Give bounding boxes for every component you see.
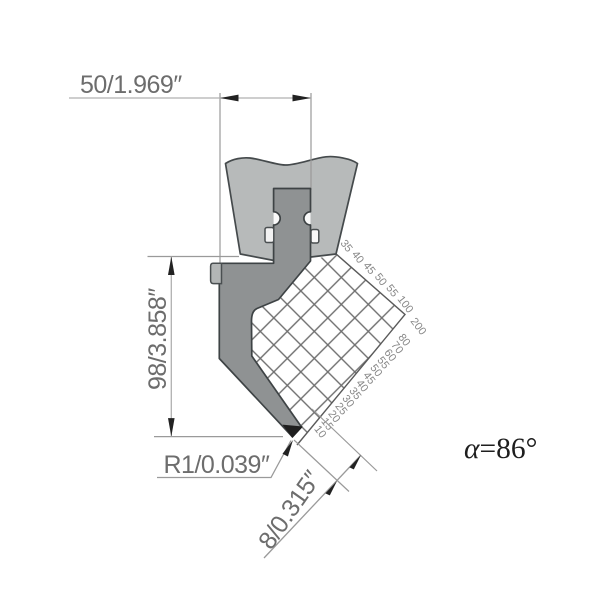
svg-text:98/3.858″: 98/3.858″ (144, 288, 172, 390)
svg-text:R1/0.039″: R1/0.039″ (164, 451, 270, 479)
svg-text:50/1.969″: 50/1.969″ (80, 71, 182, 99)
svg-text:α=86°: α=86° (464, 433, 537, 465)
